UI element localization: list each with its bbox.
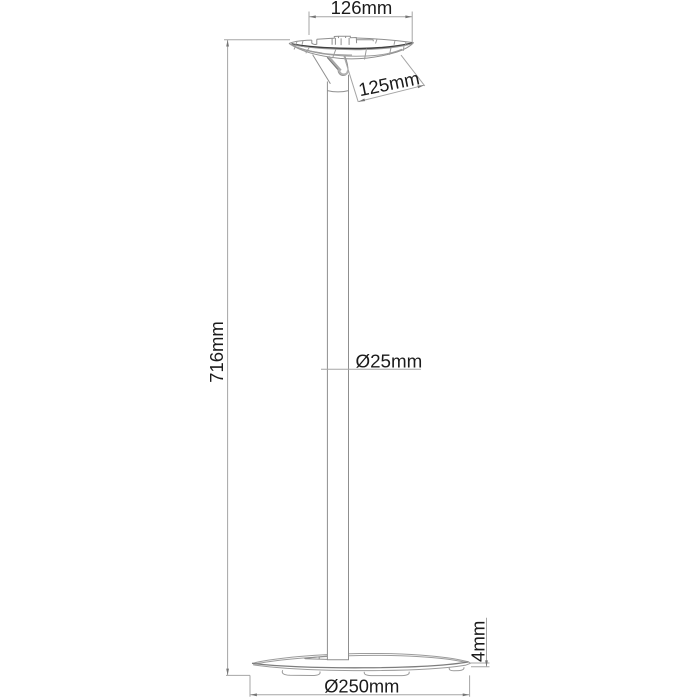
svg-text:Ø25mm: Ø25mm — [356, 351, 423, 372]
svg-text:4mm: 4mm — [468, 621, 489, 662]
svg-text:716mm: 716mm — [206, 321, 227, 383]
svg-text:126mm: 126mm — [331, 0, 393, 18]
svg-text:Ø250mm: Ø250mm — [324, 675, 399, 696]
